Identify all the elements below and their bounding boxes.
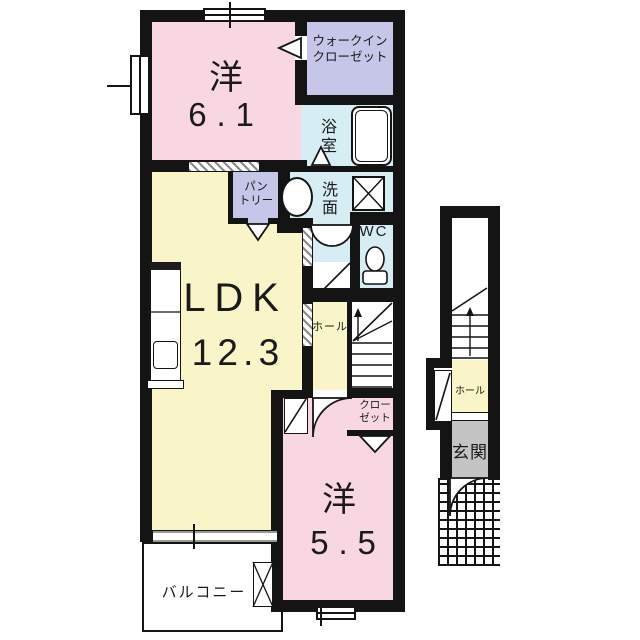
staircase-main-area xyxy=(352,302,399,398)
window-tick xyxy=(193,524,195,549)
entrance-porch-tiles xyxy=(438,478,500,566)
window-tick xyxy=(229,2,231,28)
window xyxy=(316,606,356,620)
wc-label: WC xyxy=(352,223,396,240)
annex-hall-label: ホール xyxy=(450,382,490,397)
doorway-opening xyxy=(313,390,347,398)
closet-label: クロー ゼット xyxy=(352,399,398,425)
kitchen-cooktop xyxy=(150,262,181,270)
window-tick xyxy=(107,85,132,87)
wall xyxy=(228,218,248,224)
door-leaf xyxy=(284,398,308,434)
bedroom2-size-label: 5.5 xyxy=(280,524,416,562)
floor-plan: 洋 6.1 ウォークイン クローゼット 浴室 洗面 WC パン トリー LDK … xyxy=(0,0,640,640)
wall xyxy=(440,206,452,368)
bedroom1-size-label: 6.1 xyxy=(156,96,296,134)
staircase-annex-area xyxy=(452,218,488,362)
bedroom1-name-label: 洋 xyxy=(166,50,286,99)
ldk-size-label: 12.3 xyxy=(158,332,318,374)
balcony-sliding-window xyxy=(153,531,277,542)
bedroom2-name-label: 洋 xyxy=(280,472,398,521)
wall xyxy=(302,288,405,302)
window xyxy=(203,8,266,22)
sliding-door xyxy=(188,161,260,172)
kitchen-counter-end xyxy=(147,380,184,389)
wall xyxy=(393,10,405,612)
entrance-label: 玄関 xyxy=(448,438,492,463)
bathtub xyxy=(351,106,392,166)
balcony-label: バルコニー xyxy=(148,581,260,602)
wall xyxy=(347,430,405,436)
sliding-door xyxy=(302,227,313,267)
wall xyxy=(295,166,399,172)
wall xyxy=(140,10,405,22)
wic-label: ウォークイン クローゼット xyxy=(300,33,400,66)
wash-basin xyxy=(281,177,313,217)
wall xyxy=(426,358,434,428)
wall xyxy=(295,95,393,105)
pantry-label: パン トリー xyxy=(231,180,281,209)
wall xyxy=(347,388,405,398)
hall-label: ホール xyxy=(308,318,352,334)
bathroom-label: 浴室 xyxy=(318,108,338,166)
window xyxy=(130,55,150,115)
window-tick xyxy=(320,600,322,626)
ldk-name-label: LDK xyxy=(158,276,313,321)
washroom-label: 洗面 xyxy=(319,176,339,222)
entrance-step xyxy=(452,412,488,421)
washer-pan xyxy=(352,176,385,211)
wall xyxy=(347,302,352,398)
